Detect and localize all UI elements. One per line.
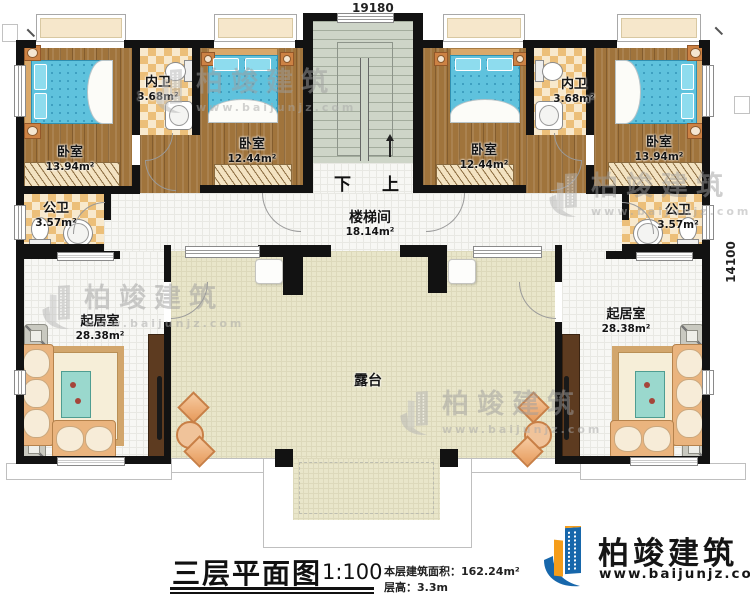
bed-pillow <box>34 64 47 90</box>
company-logo-website: www.baijunjz.com <box>599 566 750 582</box>
floor-area-value: 162.24m² <box>461 565 520 578</box>
bay-window-sill <box>621 18 697 38</box>
bay-window <box>214 14 297 42</box>
room-area: 13.94m² <box>619 151 699 163</box>
bay-window <box>443 14 525 42</box>
room-label-public-bath-left: 公卫 3.57m² <box>24 202 88 229</box>
title-underline <box>170 587 374 590</box>
wall <box>586 186 710 194</box>
stair-up-label: 上 <box>382 170 399 195</box>
plan-scale: 1:100 <box>322 560 383 584</box>
wall <box>303 13 313 193</box>
sink <box>535 101 563 130</box>
sofa-cushion <box>614 426 642 452</box>
eave-terrace-left <box>171 458 278 473</box>
bay-window-sill <box>40 18 122 38</box>
wall <box>413 13 423 193</box>
floor-height-label: 层高： <box>384 581 417 594</box>
room-area: 12.44m² <box>210 153 294 165</box>
wall <box>702 40 710 65</box>
room-area: 18.14m² <box>328 226 412 238</box>
bed-pillow <box>681 64 694 90</box>
bed-pillow <box>34 93 47 119</box>
bay-window-sill <box>447 18 521 38</box>
bay-window <box>617 14 701 42</box>
wall <box>555 245 562 282</box>
wall <box>622 244 710 251</box>
room-label-stair-hall: 楼梯间 18.14m² <box>328 210 412 238</box>
window <box>636 252 693 261</box>
window <box>14 65 26 117</box>
wall <box>164 322 171 458</box>
bay-window <box>36 14 126 42</box>
bed-pillow <box>245 58 271 71</box>
room-label-living-right: 起居室 28.38m² <box>584 308 668 335</box>
sink <box>165 101 193 130</box>
room-area: 28.38m² <box>58 330 142 342</box>
window <box>702 65 714 117</box>
window <box>702 370 714 395</box>
sofa-cushion <box>643 426 671 452</box>
sofa-cushion <box>23 379 50 408</box>
wall <box>16 186 140 194</box>
floor-height-note: 层高：3.3m <box>384 579 448 595</box>
wall <box>164 245 171 282</box>
wall <box>283 257 303 295</box>
room-area: 3.57m² <box>24 217 88 229</box>
wall <box>192 40 200 135</box>
sofa-cushion <box>676 409 703 438</box>
bed-pillow <box>681 93 694 119</box>
dimension-top: 19180 <box>352 1 394 15</box>
window <box>14 370 26 395</box>
sofa-cushion <box>676 379 703 408</box>
wall <box>104 193 111 220</box>
sofa-cushion <box>56 426 84 452</box>
wall <box>555 322 562 458</box>
room-area: 3.68m² <box>542 93 606 105</box>
floor-plan-sheet: 卧室 13.94m² 卧室 12.44m² 卧室 12.44m² 卧室 13.9… <box>0 0 750 598</box>
room-label-terrace: 露台 <box>326 373 410 389</box>
stair-rail <box>360 58 369 161</box>
room-name: 公卫 <box>24 202 88 217</box>
nightstand <box>280 52 294 66</box>
wall-lamp <box>255 259 283 284</box>
dimension-tick <box>715 27 723 35</box>
title-underline <box>170 592 374 594</box>
edge-mark <box>734 96 750 114</box>
wall <box>400 245 447 257</box>
room-label-bedroom-right-inner: 卧室 12.44m² <box>442 144 526 171</box>
room-label-ensuite-left: 内卫 3.68m² <box>126 76 190 103</box>
column <box>440 449 458 467</box>
wall <box>702 393 710 464</box>
wall <box>16 244 104 251</box>
sofa-cushion <box>676 349 703 378</box>
room-label-bedroom-left-inner: 卧室 12.44m² <box>210 138 294 165</box>
room-label-public-bath-right: 公卫 3.57m² <box>646 204 710 231</box>
stair-arrow-head <box>386 134 394 141</box>
bed-pillow <box>455 58 481 71</box>
room-name: 卧室 <box>442 144 526 159</box>
window <box>57 252 114 261</box>
room-name: 卧室 <box>210 138 294 153</box>
floor-area-note: 本层建筑面积：162.24m² <box>384 563 520 579</box>
nightstand <box>24 123 41 139</box>
wall <box>428 257 447 293</box>
dimension-right: 14100 <box>724 241 738 283</box>
wall-lamp <box>448 259 476 284</box>
window <box>185 246 260 258</box>
wall <box>526 40 534 135</box>
tv <box>157 376 162 440</box>
bay-window-sill <box>218 18 293 38</box>
bed-pillow <box>487 58 513 71</box>
coffee-table <box>61 371 91 418</box>
room-label-bedroom-left-outer: 卧室 13.94m² <box>30 146 110 173</box>
room-name: 起居室 <box>584 308 668 323</box>
column <box>275 449 293 467</box>
room-name: 内卫 <box>542 78 606 93</box>
wall <box>258 245 331 257</box>
sofa-cushion <box>23 409 50 438</box>
room-name: 楼梯间 <box>328 210 412 226</box>
nightstand <box>434 52 448 66</box>
room-name: 起居室 <box>58 315 142 330</box>
room-label-living-left: 起居室 28.38m² <box>58 315 142 342</box>
stair-down-label: 下 <box>334 170 351 195</box>
window <box>57 457 125 466</box>
plan-title: 三层平面图 <box>172 552 322 592</box>
wall <box>16 40 24 65</box>
room-label-ensuite-right: 内卫 3.68m² <box>542 78 606 105</box>
room-name: 卧室 <box>619 136 699 151</box>
wall <box>392 13 423 21</box>
room-area: 13.94m² <box>30 161 110 173</box>
wardrobe <box>608 162 704 187</box>
coffee-table <box>635 371 665 418</box>
wall <box>523 40 617 48</box>
room-area: 12.44m² <box>442 159 526 171</box>
window <box>473 246 542 258</box>
floor-height-value: 3.3m <box>417 581 448 594</box>
floor-area-label: 本层建筑面积： <box>384 565 461 578</box>
room-name: 内卫 <box>126 76 190 91</box>
floor-terrace <box>171 251 555 458</box>
window <box>630 457 698 466</box>
nightstand <box>513 52 527 66</box>
room-area: 3.57m² <box>646 219 710 231</box>
room-area: 3.68m² <box>126 91 190 103</box>
sofa-cushion <box>85 426 113 452</box>
wall <box>200 185 303 193</box>
wall <box>16 393 24 464</box>
bed-pillow <box>213 58 239 71</box>
room-name: 露台 <box>326 373 410 389</box>
wall <box>303 13 337 21</box>
dimension-tick <box>27 29 35 37</box>
company-logo-icon <box>537 526 593 590</box>
bed-duvet <box>87 60 113 124</box>
room-name: 卧室 <box>30 146 110 161</box>
room-label-bedroom-right-outer: 卧室 13.94m² <box>619 136 699 163</box>
terrace-edge-dashed <box>299 462 434 514</box>
room-name: 公卫 <box>646 204 710 219</box>
tv <box>564 376 569 440</box>
wall <box>423 185 526 193</box>
room-area: 28.38m² <box>584 323 668 335</box>
stair-direction-arrow <box>389 140 391 157</box>
sofa-cushion <box>23 349 50 378</box>
